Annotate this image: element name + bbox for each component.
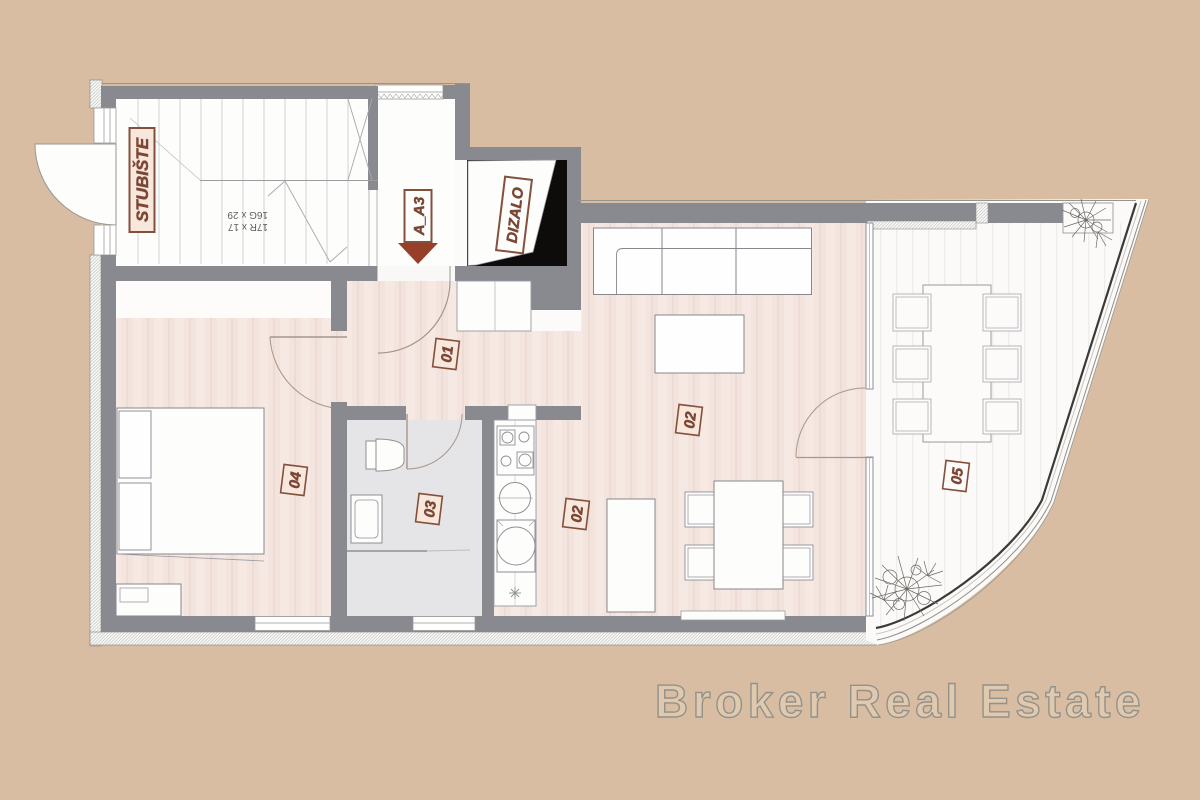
svg-text:04: 04 <box>286 470 305 489</box>
svg-text:A_A3: A_A3 <box>411 196 428 236</box>
svg-text:02: 02 <box>681 410 700 429</box>
svg-text:STUBIŠTE: STUBIŠTE <box>133 137 152 222</box>
svg-text:17R x 17: 17R x 17 <box>228 221 268 232</box>
svg-text:01: 01 <box>438 345 457 364</box>
svg-text:Broker Real Estate: Broker Real Estate <box>655 675 1145 727</box>
svg-text:02: 02 <box>568 504 587 523</box>
svg-text:16G x 29: 16G x 29 <box>227 209 268 220</box>
svg-text:03: 03 <box>421 499 440 518</box>
svg-text:05: 05 <box>948 466 967 485</box>
